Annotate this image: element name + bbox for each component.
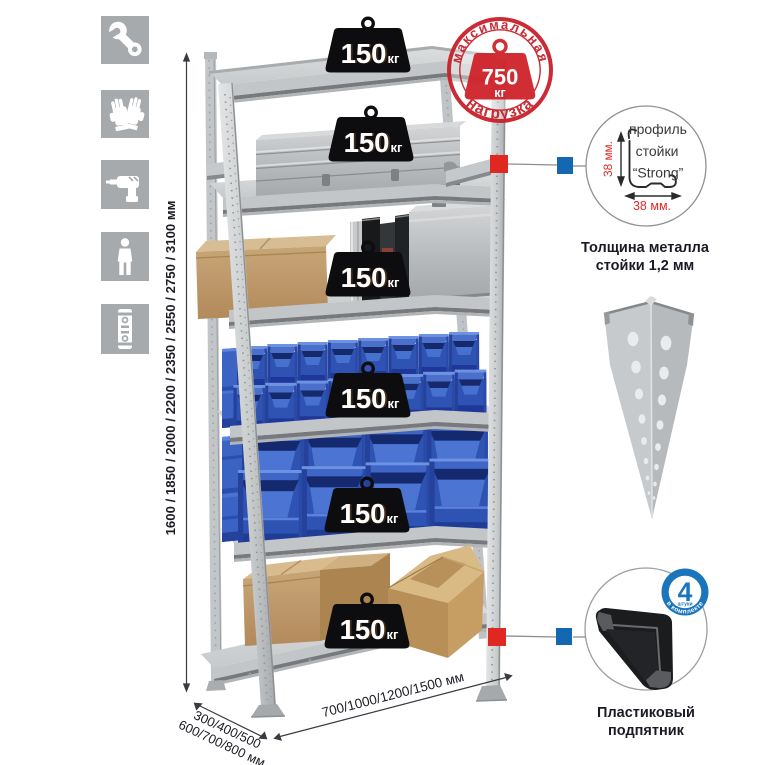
svg-text:1600 / 1850 / 2000 / 2200 / 23: 1600 / 1850 / 2000 / 2200 / 2350 / 2550 … [163, 201, 178, 536]
svg-text:подпятник: подпятник [608, 723, 685, 739]
svg-text:Толщина металла: Толщина металла [581, 240, 710, 256]
svg-text:38 мм.: 38 мм. [633, 199, 671, 213]
svg-text:штуки: штуки [677, 602, 692, 608]
svg-text:профиль: профиль [629, 121, 687, 137]
svg-text:кг: кг [494, 86, 505, 100]
svg-text:“Strong”: “Strong” [633, 165, 684, 181]
svg-text:38 мм.: 38 мм. [601, 141, 615, 177]
svg-text:стойки: стойки [636, 143, 679, 159]
svg-text:Пластиковый: Пластиковый [597, 705, 695, 721]
svg-text:стойки 1,2 мм: стойки 1,2 мм [596, 258, 695, 274]
